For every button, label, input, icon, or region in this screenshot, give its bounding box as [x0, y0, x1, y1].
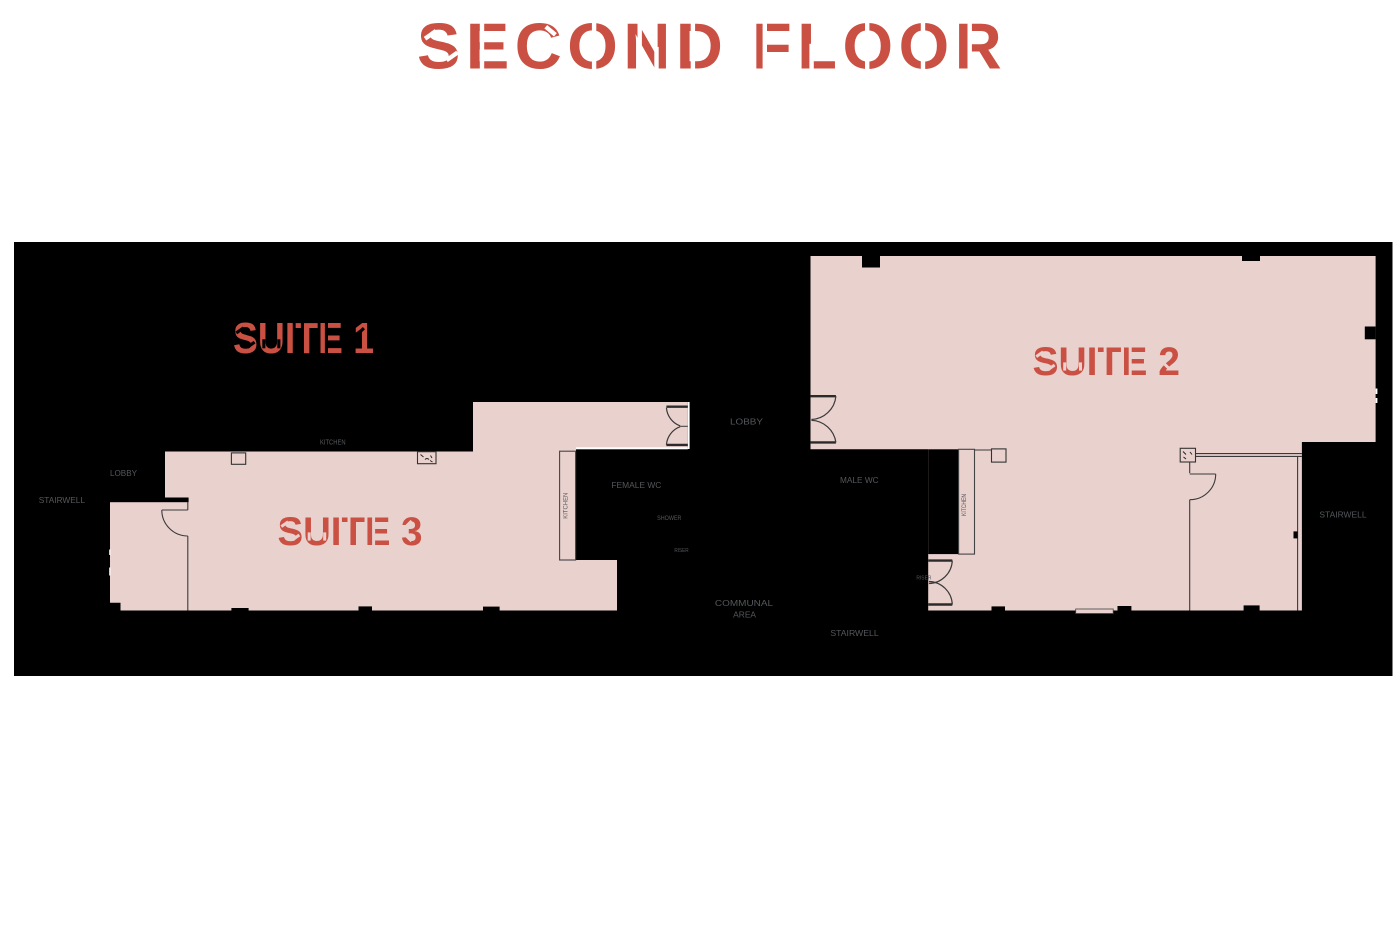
- svg-text:COMMUNAL: COMMUNAL: [715, 598, 773, 608]
- svg-text:LOBBY: LOBBY: [730, 417, 763, 427]
- svg-text:SECOND FLOOR: SECOND FLOOR: [417, 10, 1007, 83]
- svg-text:FEMALE WC: FEMALE WC: [611, 480, 661, 490]
- svg-text:AREA: AREA: [733, 609, 756, 619]
- svg-text:RISER: RISER: [916, 576, 931, 582]
- svg-text:SUITE 2: SUITE 2: [1032, 340, 1180, 384]
- svg-text:STAIRWELL: STAIRWELL: [1319, 509, 1366, 519]
- svg-text:KITCHEN: KITCHEN: [961, 494, 968, 516]
- svg-text:STAIRWELL: STAIRWELL: [39, 495, 86, 505]
- svg-text:LOBBY: LOBBY: [110, 468, 137, 478]
- svg-text:KITCHEN: KITCHEN: [563, 492, 570, 518]
- svg-text:RISER: RISER: [674, 548, 688, 554]
- svg-text:KITCHEN: KITCHEN: [320, 440, 346, 447]
- svg-text:STAIRWELL: STAIRWELL: [830, 628, 879, 638]
- svg-text:MALE WC: MALE WC: [840, 475, 879, 485]
- svg-text:SUITE 1: SUITE 1: [233, 315, 374, 363]
- svg-text:SHOWER: SHOWER: [657, 515, 682, 522]
- svg-text:SUITE 3: SUITE 3: [278, 510, 423, 554]
